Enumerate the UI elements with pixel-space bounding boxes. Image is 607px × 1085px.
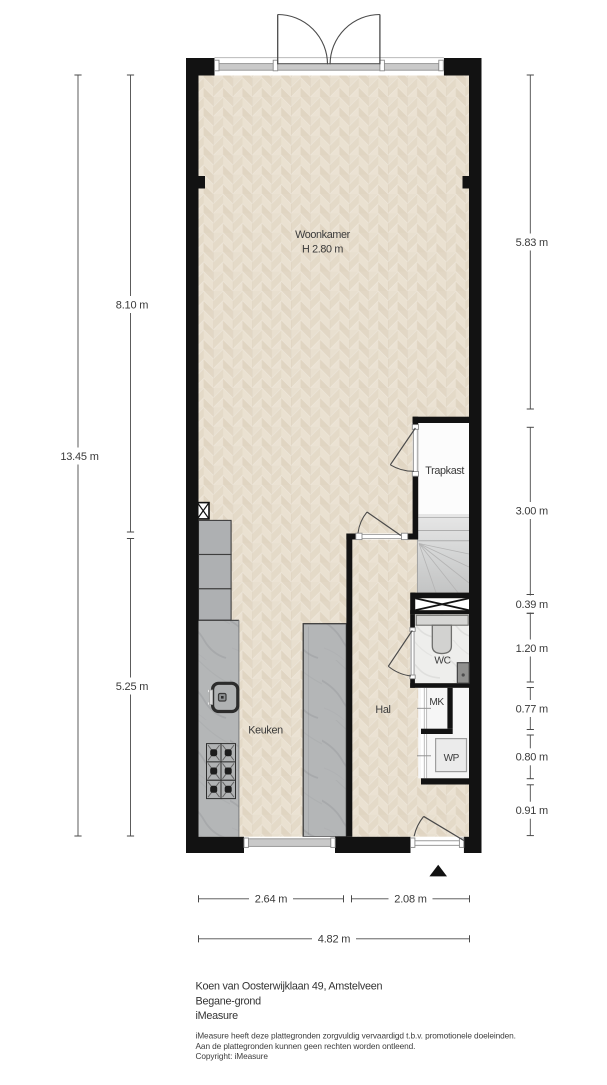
svg-text:MK: MK: [429, 697, 444, 708]
svg-text:0.77 m: 0.77 m: [516, 703, 548, 715]
svg-text:5.83 m: 5.83 m: [516, 237, 548, 249]
svg-text:5.25 m: 5.25 m: [116, 681, 148, 693]
svg-text:3.00 m: 3.00 m: [516, 505, 548, 517]
svg-text:H 2.80 m: H 2.80 m: [302, 244, 343, 256]
svg-text:4.82 m: 4.82 m: [318, 934, 350, 946]
svg-text:0.39 m: 0.39 m: [516, 599, 548, 611]
svg-text:0.91 m: 0.91 m: [516, 805, 548, 817]
svg-text:iMeasure: iMeasure: [196, 1010, 239, 1022]
svg-text:Begane-grond: Begane-grond: [196, 996, 262, 1008]
svg-text:WC: WC: [434, 656, 450, 667]
svg-text:13.45 m: 13.45 m: [60, 451, 98, 463]
svg-text:0.80 m: 0.80 m: [516, 752, 548, 764]
svg-text:8.10 m: 8.10 m: [116, 299, 148, 311]
svg-text:2.08 m: 2.08 m: [394, 894, 426, 906]
svg-text:Hal: Hal: [375, 704, 390, 716]
svg-text:Koen van Oosterwijklaan 49, Am: Koen van Oosterwijklaan 49, Amstelveen: [196, 981, 383, 993]
svg-text:Copyright: iMeasure: Copyright: iMeasure: [196, 1051, 269, 1061]
svg-text:Trapkast: Trapkast: [425, 465, 464, 477]
svg-text:WP: WP: [444, 753, 460, 764]
svg-text:2.64 m: 2.64 m: [255, 894, 287, 906]
svg-text:Woonkamer: Woonkamer: [295, 229, 351, 241]
svg-text:iMeasure heeft deze plattegron: iMeasure heeft deze plattegronden zorgvu…: [196, 1031, 516, 1041]
svg-text:Keuken: Keuken: [248, 724, 283, 736]
svg-text:1.20 m: 1.20 m: [516, 643, 548, 655]
svg-text:Aan de plattegronden kunnen ge: Aan de plattegronden kunnen geen rechten…: [196, 1041, 416, 1051]
